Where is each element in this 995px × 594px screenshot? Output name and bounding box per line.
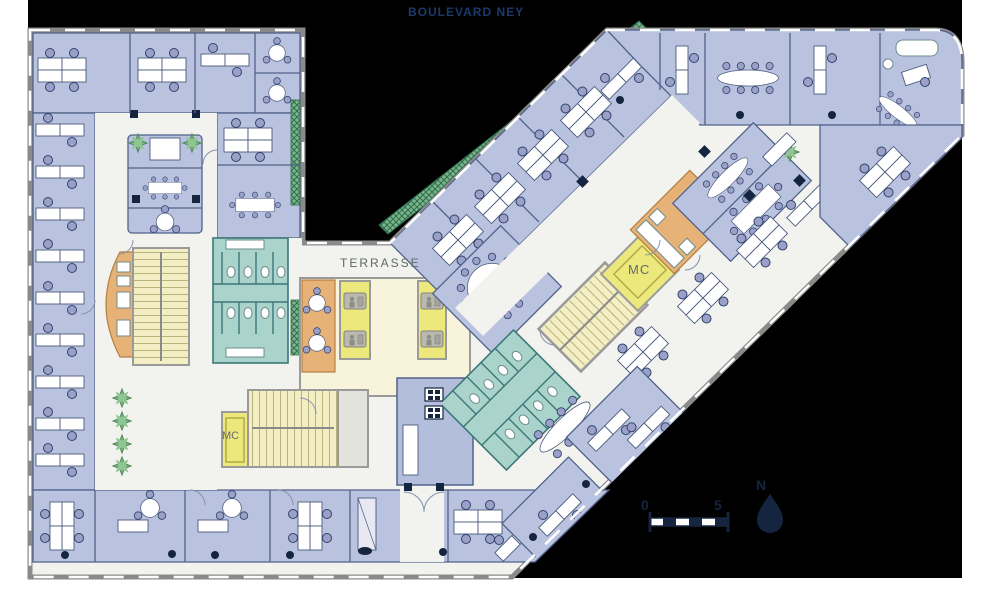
street-label: BOULEVARD NEY [408, 5, 518, 19]
floor-plan: BOULEVARD NEY TERRASSE MC MC 0 5 N [0, 0, 995, 594]
service-shaft [338, 390, 368, 467]
mc-label-right: MC [628, 262, 650, 277]
trellis-facade-east [291, 100, 300, 205]
scale-start-label: 0 [641, 497, 649, 513]
trellis-facade-east2 [291, 300, 300, 355]
north-label: N [756, 477, 766, 493]
sanitary-left [213, 238, 288, 363]
mc-label-left: MC [222, 430, 239, 442]
floor-plan-drawing [0, 0, 995, 594]
scale-end-label: 5 [714, 497, 722, 513]
terrace-label: TERRASSE [340, 256, 421, 270]
left-offices [36, 114, 84, 477]
entrance-vestibule [400, 487, 444, 562]
